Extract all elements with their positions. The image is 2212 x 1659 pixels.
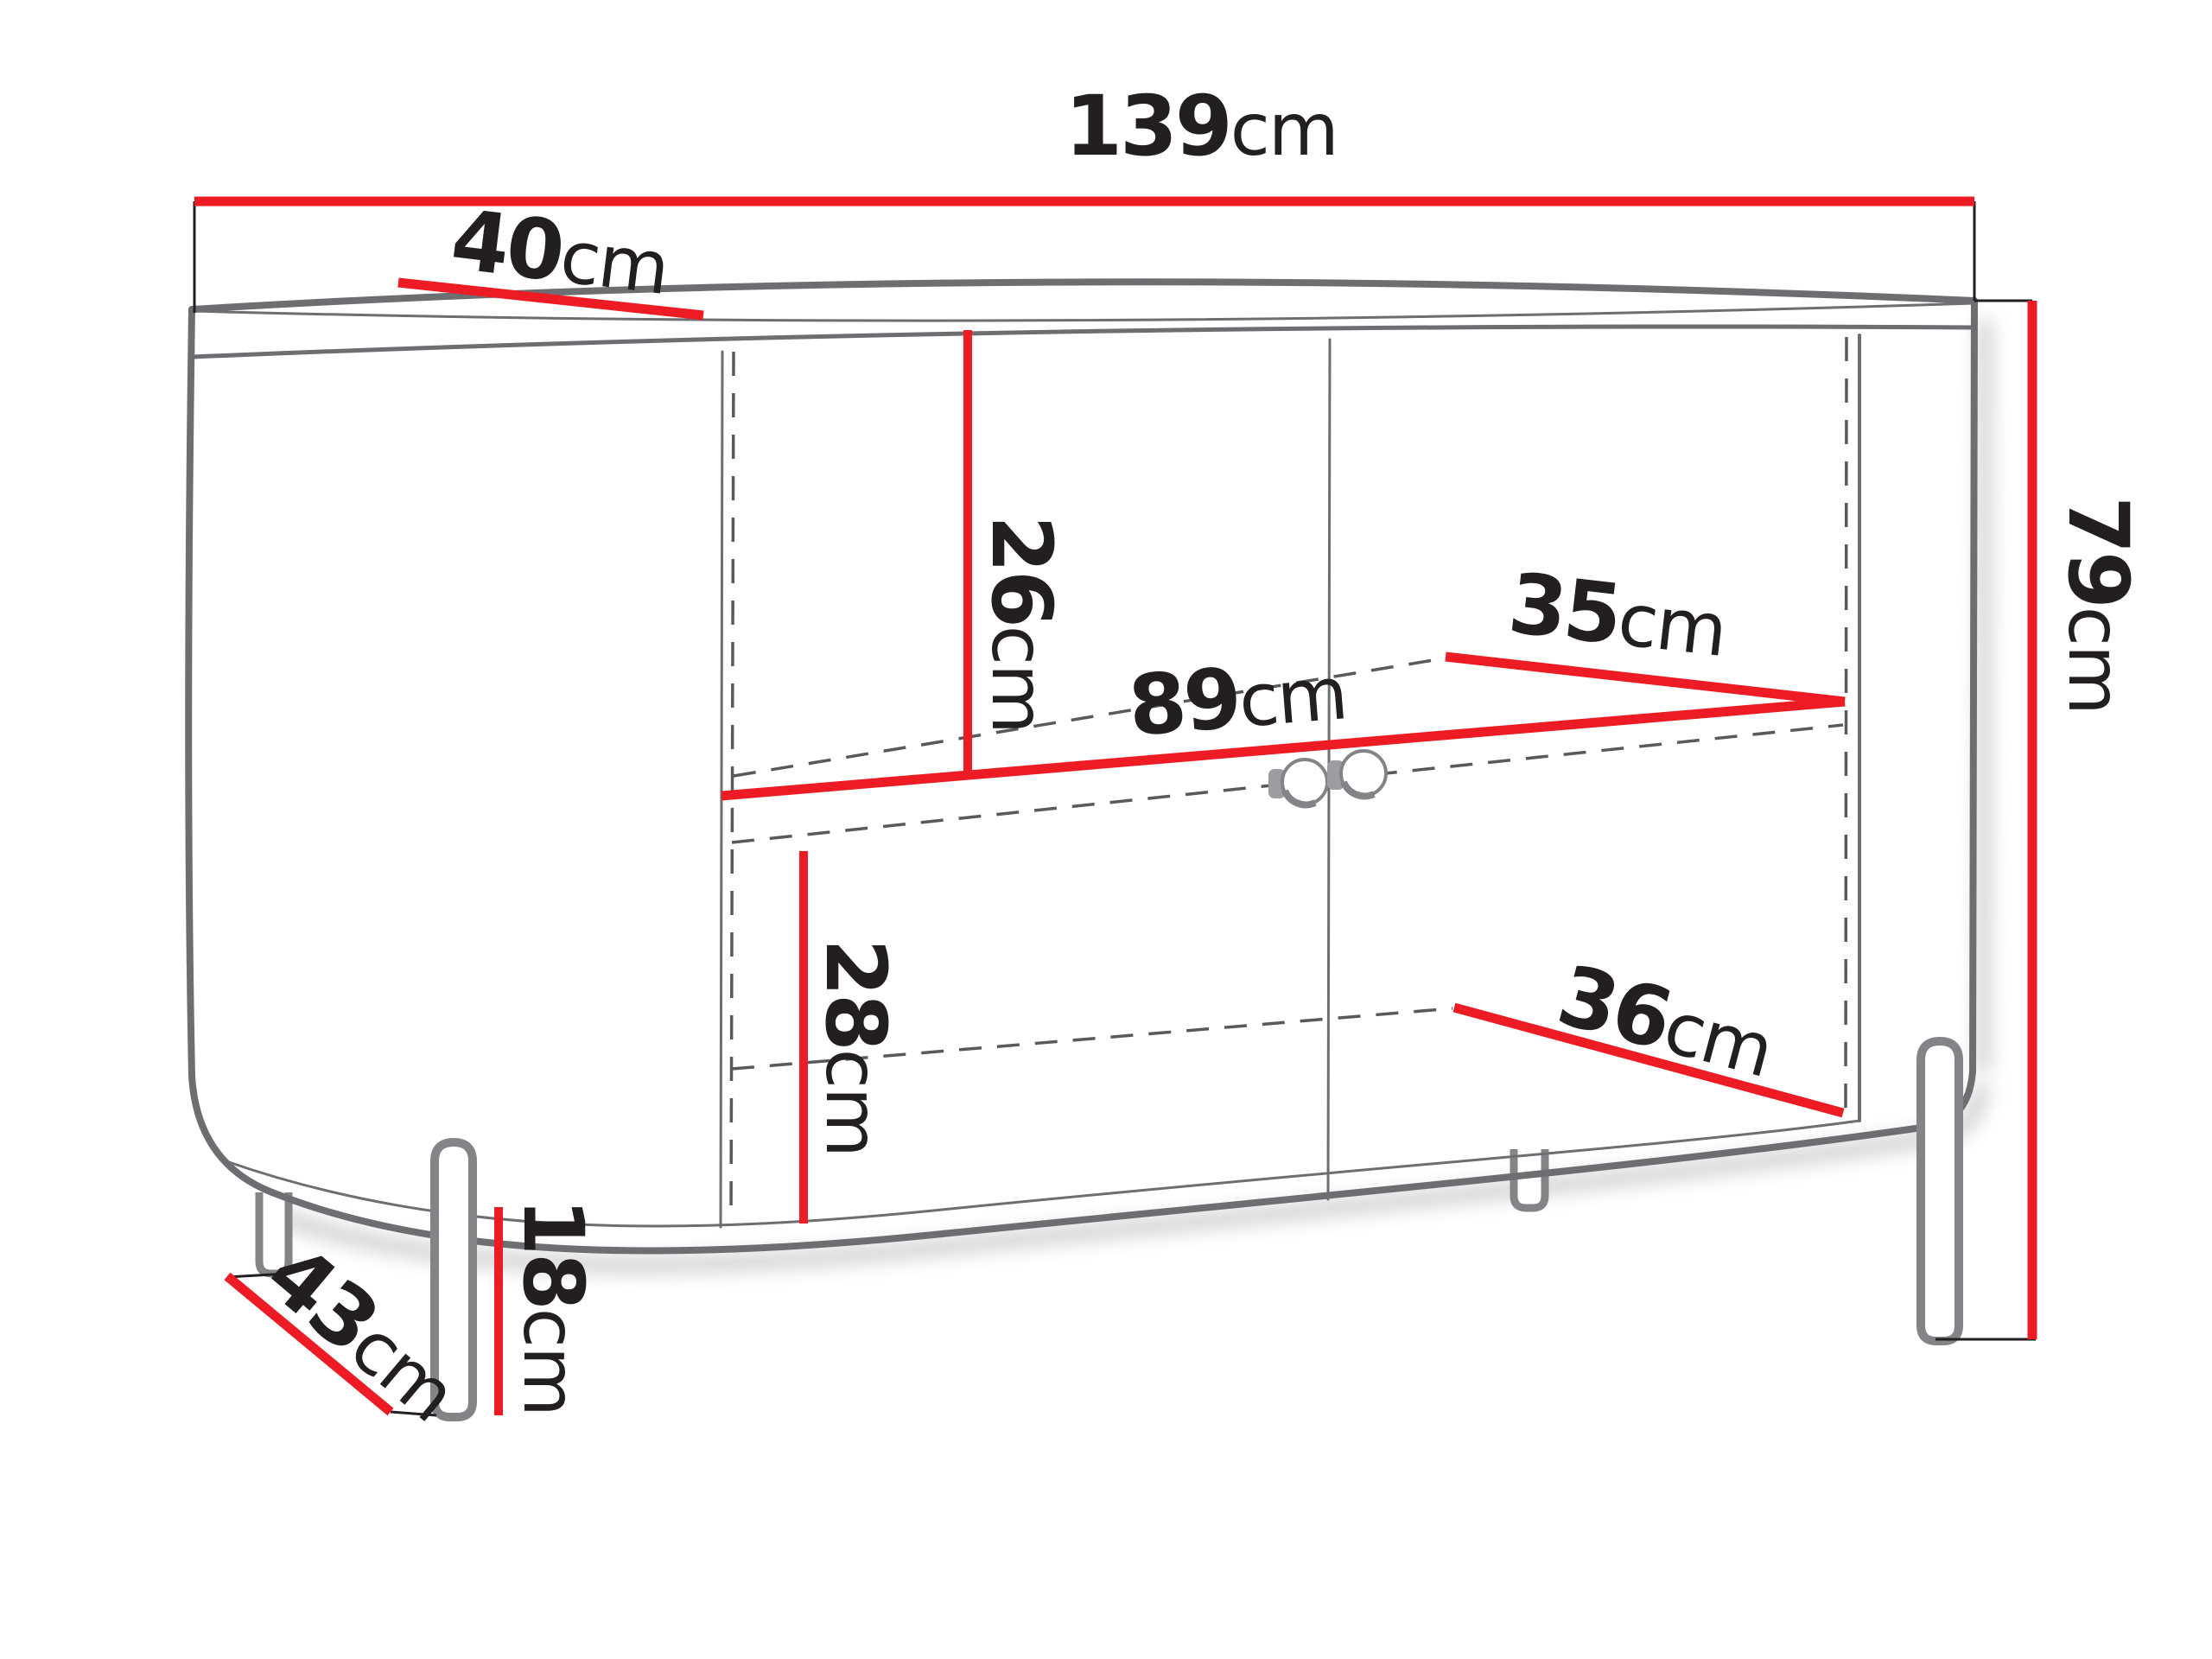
- door-handles: [1268, 751, 1386, 804]
- dimension-unit: cm: [556, 214, 672, 311]
- left-divider-edge: [721, 352, 722, 1227]
- dimension-value: 79: [2050, 496, 2146, 607]
- dimension-drawing: 139cm 40cm 26cm 89cm 35cm 28cm 36cm 79cm…: [0, 0, 2212, 1659]
- dimension-unit: cm: [507, 1308, 592, 1415]
- dimension-value: 139: [1065, 78, 1230, 175]
- dimension-unit: cm: [1236, 651, 1349, 743]
- left-edge: [188, 309, 272, 1192]
- dimension-unit: cm: [1230, 87, 1338, 172]
- dimension-label-18cm: 18cm: [512, 1198, 594, 1415]
- front-right-leg: [1921, 1041, 1959, 1341]
- dimension-unit: cm: [1614, 576, 1730, 672]
- dimension-value: 35: [1504, 555, 1624, 664]
- dimension-label-28cm: 28cm: [814, 938, 897, 1156]
- right-edge: [1973, 301, 1974, 1071]
- dimension-label-26cm: 26cm: [980, 515, 1063, 733]
- left-divider-hidden-edge: [731, 352, 734, 1220]
- dimension-label-139cm: 139cm: [1065, 85, 1337, 168]
- dimension-value: 18: [505, 1198, 601, 1308]
- dimension-value: 26: [973, 515, 1070, 626]
- dimension-value: 89: [1125, 650, 1243, 755]
- dimension-unit: cm: [2052, 607, 2137, 714]
- cabinet-shadow: [275, 320, 1985, 1265]
- dimension-label-89cm: 89cm: [1126, 648, 1349, 747]
- dimension-unit: cm: [810, 1049, 894, 1156]
- right-divider-hidden-edge: [1846, 337, 1847, 1111]
- top-front-edge: [192, 303, 1974, 321]
- dimension-unit: cm: [976, 626, 1060, 733]
- dimension-label-79cm: 79cm: [2056, 496, 2139, 714]
- dimension-value: 28: [807, 938, 904, 1049]
- top-band-bottom-edge: [193, 327, 1973, 357]
- cabinet-drawing-svg: [0, 0, 2212, 1659]
- dimension-value: 40: [446, 191, 567, 301]
